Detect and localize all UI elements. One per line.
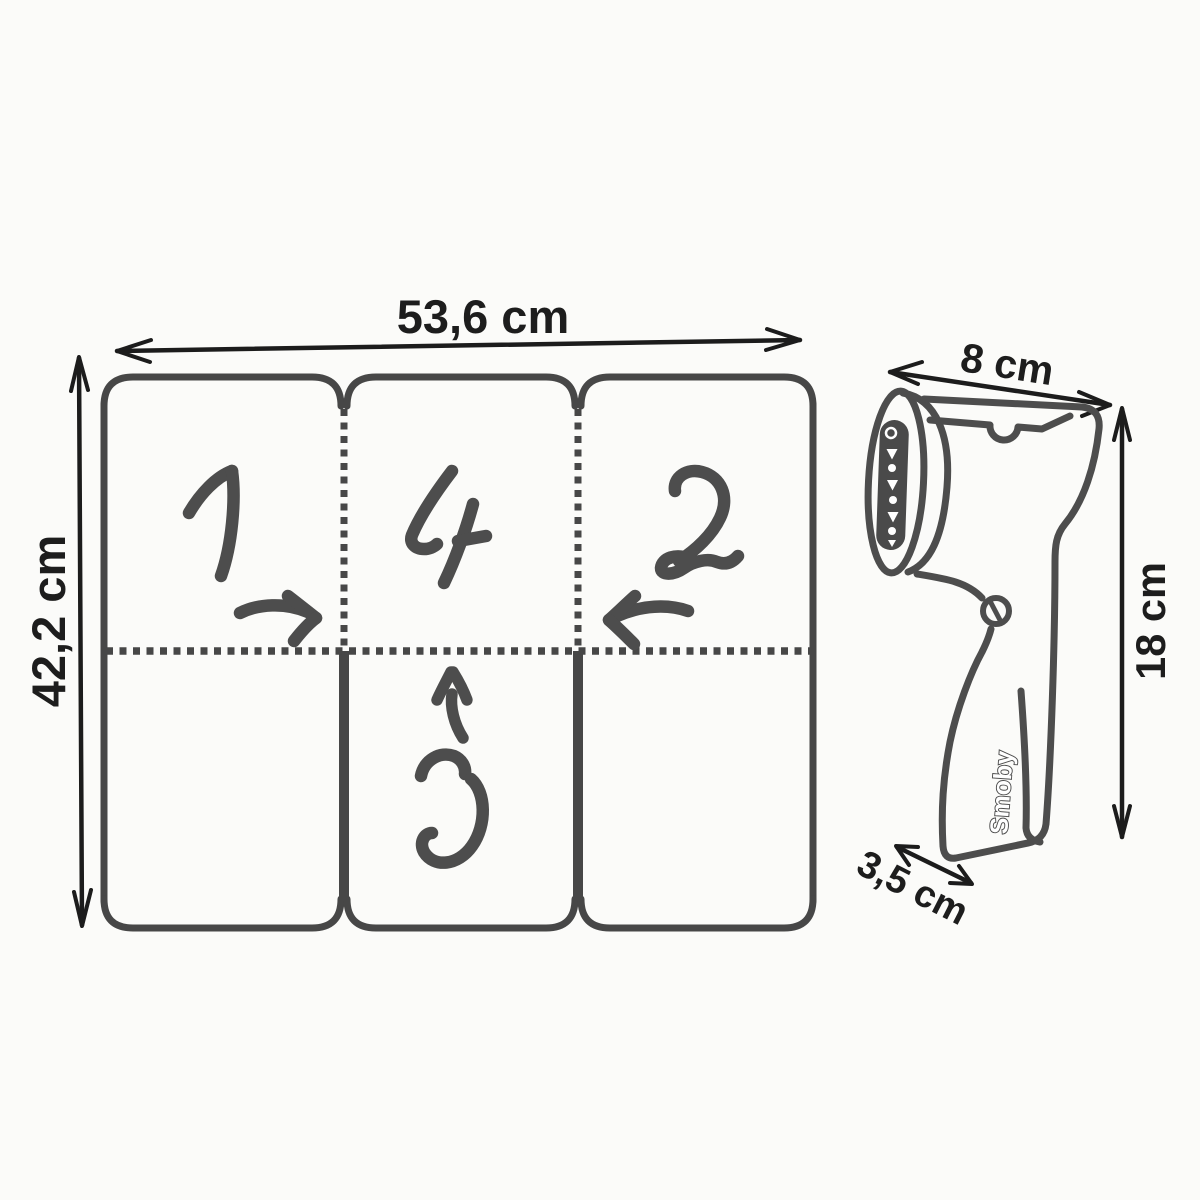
svg-text:Smoby: Smoby bbox=[985, 750, 1019, 835]
svg-text:42,2 cm: 42,2 cm bbox=[22, 535, 75, 707]
svg-text:18 cm: 18 cm bbox=[1127, 562, 1174, 680]
svg-text:53,6 cm: 53,6 cm bbox=[397, 290, 569, 343]
